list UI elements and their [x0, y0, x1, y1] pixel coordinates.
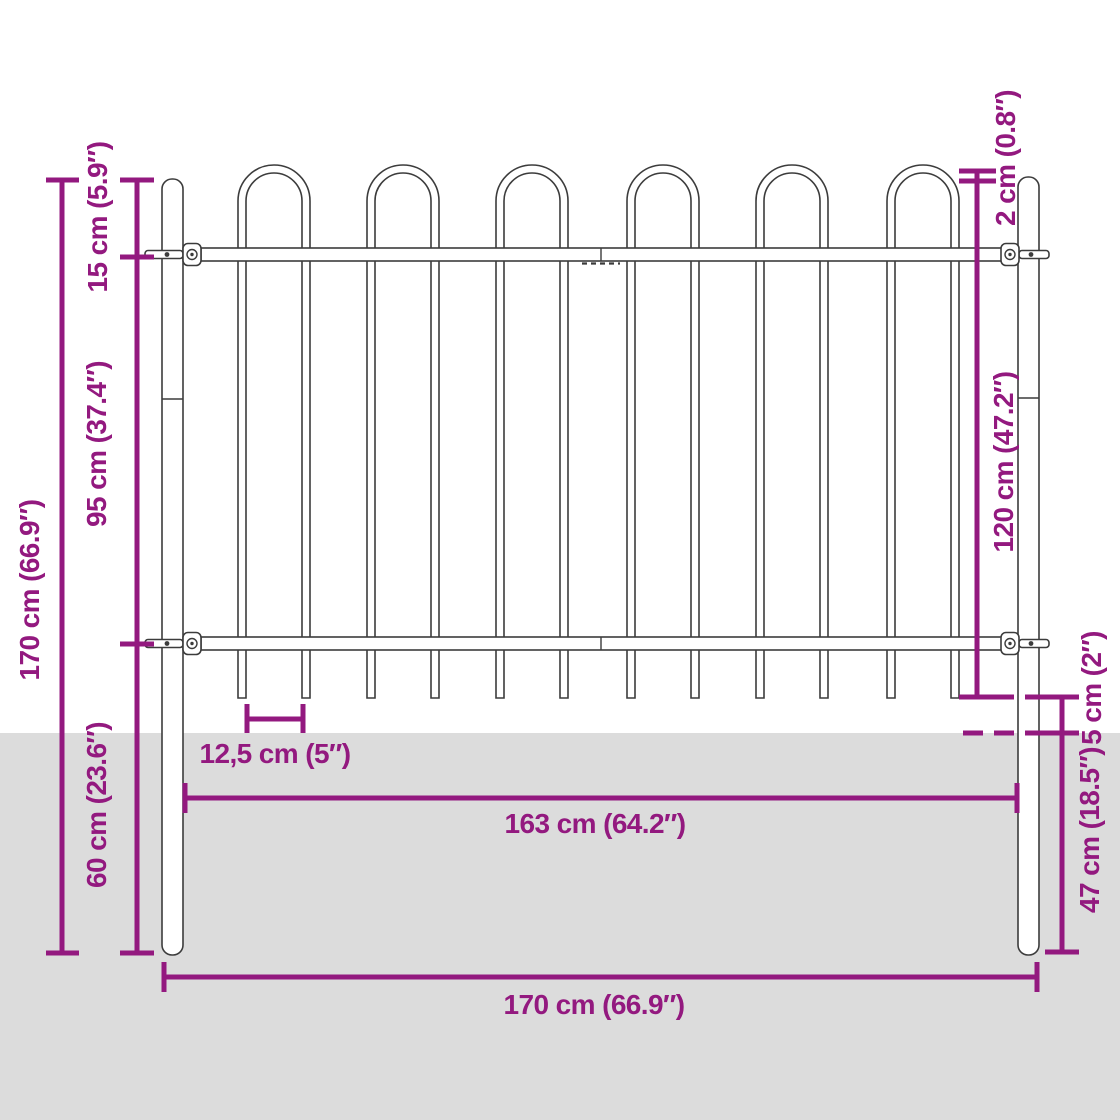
fence-drawing	[0, 0, 1120, 1120]
label-underground-height: 60 cm (23.6″)	[83, 722, 111, 888]
left-post	[162, 179, 183, 955]
label-post-depth: 47 cm (18.5″)	[1076, 747, 1104, 913]
right-post	[1018, 177, 1039, 955]
label-panel-height: 120 cm (47.2″)	[990, 372, 1018, 553]
label-hoop-overhang: 2 cm (0.8″)	[992, 90, 1020, 226]
label-bar-spacing: 12,5 cm (5″)	[200, 740, 351, 768]
label-panel-width: 163 cm (64.2″)	[505, 810, 686, 838]
label-total-height: 170 cm (66.9″)	[16, 500, 44, 681]
label-total-width: 170 cm (66.9″)	[504, 991, 685, 1019]
label-hoop-height: 15 cm (5.9″)	[84, 142, 112, 293]
mounting-straps	[145, 251, 1049, 648]
label-ground-gap: 5 cm (2″)	[1078, 631, 1106, 745]
bottom-rail	[201, 637, 1002, 650]
hoop-bars	[238, 165, 959, 698]
fence-dimension-diagram: 170 cm (66.9″) 15 cm (5.9″) 95 cm (37.4″…	[0, 0, 1120, 1120]
top-rail	[201, 248, 1002, 264]
label-mid-height: 95 cm (37.4″)	[83, 361, 111, 527]
